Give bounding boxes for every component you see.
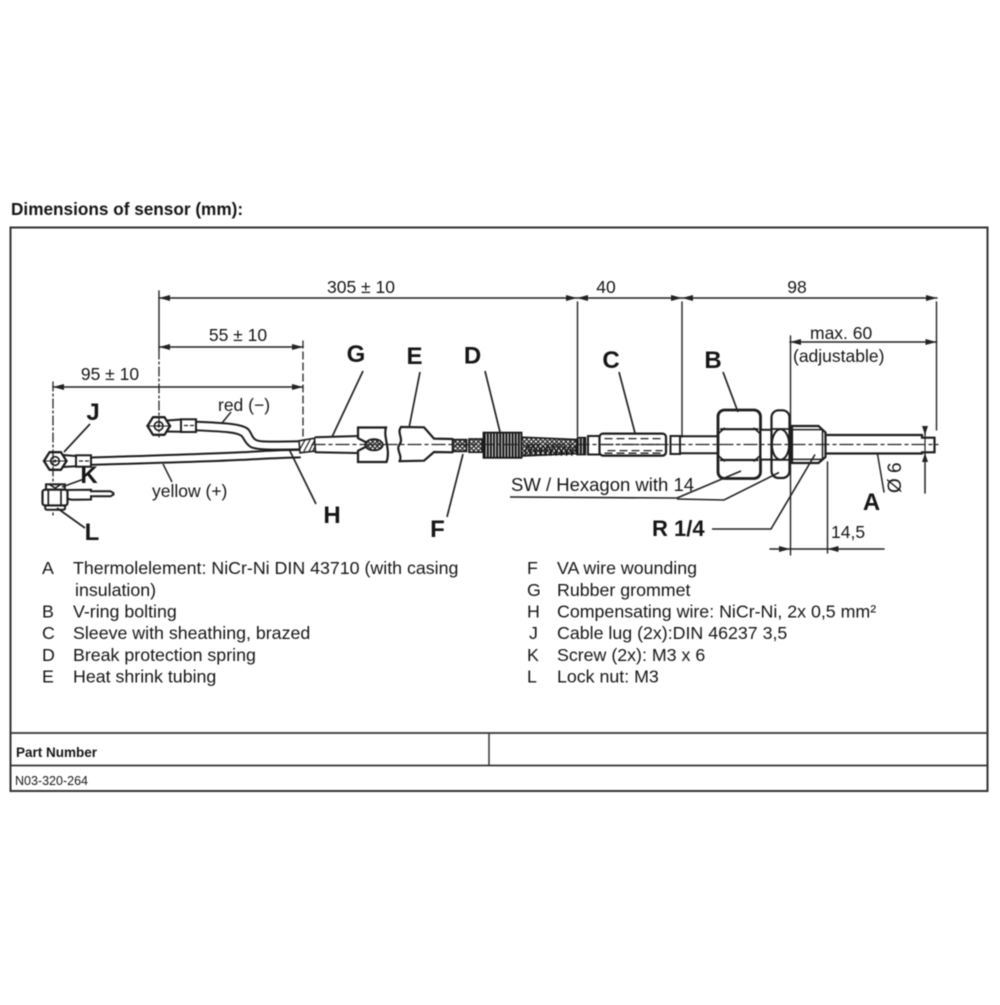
svg-text:L: L <box>85 519 100 546</box>
svg-text:D: D <box>464 343 481 370</box>
svg-text:J: J <box>86 399 99 426</box>
svg-text:F: F <box>527 558 538 578</box>
svg-text:yellow (+): yellow (+) <box>152 481 227 501</box>
svg-text:Cable lug (2x):DIN 46237 3,5: Cable lug (2x):DIN 46237 3,5 <box>557 623 787 643</box>
svg-text:98: 98 <box>787 277 806 297</box>
svg-text:Part Number: Part Number <box>16 745 98 760</box>
svg-text:B: B <box>704 347 721 374</box>
svg-text:G: G <box>527 580 541 600</box>
svg-text:Screw (2x): M3 x 6: Screw (2x): M3 x 6 <box>557 645 705 665</box>
svg-text:55 ± 10: 55 ± 10 <box>209 325 268 345</box>
svg-text:insulation): insulation) <box>75 580 156 600</box>
svg-text:H: H <box>323 502 340 529</box>
svg-text:40: 40 <box>596 277 616 297</box>
svg-text:H: H <box>527 602 540 622</box>
svg-text:Break protection spring: Break protection spring <box>73 645 256 665</box>
svg-text:14,5: 14,5 <box>831 522 865 542</box>
svg-text:K: K <box>527 645 539 665</box>
svg-text:C: C <box>602 347 619 374</box>
svg-text:max. 60: max. 60 <box>810 323 873 343</box>
svg-text:L: L <box>527 667 537 687</box>
svg-text:VA wire wounding: VA wire wounding <box>557 558 697 578</box>
svg-text:V-ring bolting: V-ring bolting <box>73 602 177 622</box>
svg-text:A: A <box>863 489 880 516</box>
svg-text:Heat shrink tubing: Heat shrink tubing <box>73 667 216 687</box>
svg-text:D: D <box>42 645 55 665</box>
svg-text:red (−): red (−) <box>218 395 270 415</box>
svg-text:(adjustable): (adjustable) <box>793 346 884 366</box>
svg-text:Lock nut: M3: Lock nut: M3 <box>557 667 659 687</box>
svg-text:E: E <box>406 343 422 370</box>
svg-text:N03-320-264: N03-320-264 <box>15 774 88 788</box>
svg-text:R 1/4: R 1/4 <box>652 516 705 541</box>
svg-text:E: E <box>42 667 54 687</box>
svg-text:Thermolelement: NiCr-Ni DIN 43: Thermolelement: NiCr-Ni DIN 43710 (with … <box>73 558 458 578</box>
svg-text:K: K <box>80 462 98 489</box>
svg-text:Dimensions of sensor (mm):: Dimensions of sensor (mm): <box>11 199 243 219</box>
svg-text:95 ± 10: 95 ± 10 <box>81 364 140 384</box>
svg-text:305 ± 10: 305 ± 10 <box>327 277 395 297</box>
svg-text:Compensating wire: NiCr-Ni, 2x: Compensating wire: NiCr-Ni, 2x 0,5 mm² <box>557 602 876 622</box>
svg-text:A: A <box>42 558 54 578</box>
svg-text:J: J <box>529 623 538 643</box>
svg-text:Ø 6: Ø 6 <box>885 462 906 493</box>
svg-text:SW / Hexagon with 14: SW / Hexagon with 14 <box>511 474 694 495</box>
svg-text:Rubber grommet: Rubber grommet <box>557 580 690 600</box>
svg-text:F: F <box>430 516 445 543</box>
svg-text:G: G <box>347 341 366 368</box>
svg-text:C: C <box>42 623 55 643</box>
svg-text:Sleeve with sheathing, brazed: Sleeve with sheathing, brazed <box>73 623 310 643</box>
svg-text:B: B <box>42 602 54 622</box>
